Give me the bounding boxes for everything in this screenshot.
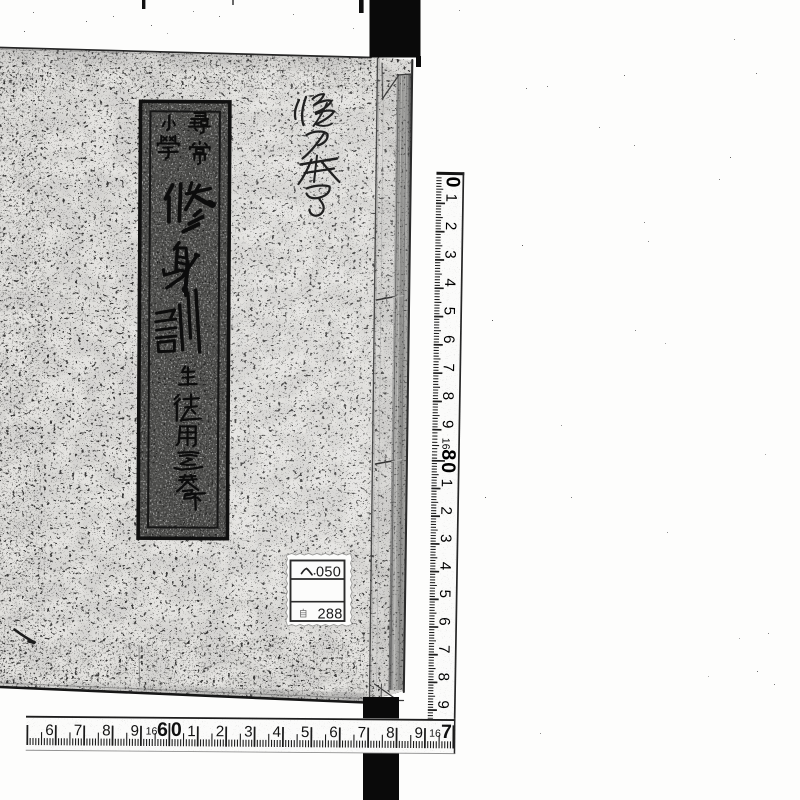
svg-text:6: 6 bbox=[440, 335, 457, 344]
svg-text:8: 8 bbox=[435, 672, 452, 681]
svg-text:4: 4 bbox=[272, 724, 281, 741]
svg-text:288: 288 bbox=[318, 607, 343, 623]
svg-text:9: 9 bbox=[439, 420, 456, 429]
svg-text:16: 16 bbox=[439, 438, 451, 450]
svg-text:2: 2 bbox=[437, 506, 454, 515]
svg-text:7: 7 bbox=[440, 363, 457, 372]
svg-text:6: 6 bbox=[436, 617, 453, 626]
svg-text:4: 4 bbox=[441, 278, 458, 287]
svg-text:16: 16 bbox=[146, 725, 158, 737]
svg-text:7: 7 bbox=[74, 722, 83, 739]
svg-text:050: 050 bbox=[316, 565, 341, 581]
svg-text:2: 2 bbox=[216, 723, 225, 740]
svg-text:8: 8 bbox=[102, 722, 111, 739]
svg-text:0: 0 bbox=[442, 176, 464, 187]
svg-text:0: 0 bbox=[171, 719, 182, 741]
svg-text:3: 3 bbox=[244, 724, 253, 741]
svg-text:16: 16 bbox=[429, 728, 441, 740]
svg-text:0: 0 bbox=[437, 462, 459, 473]
svg-text:6: 6 bbox=[157, 719, 168, 741]
svg-text:9: 9 bbox=[414, 725, 423, 742]
svg-text:9: 9 bbox=[434, 700, 451, 709]
svg-text:7: 7 bbox=[441, 721, 452, 743]
svg-text:7: 7 bbox=[358, 724, 367, 741]
svg-text:6: 6 bbox=[329, 724, 338, 741]
svg-text:1: 1 bbox=[438, 479, 455, 488]
svg-text:1: 1 bbox=[442, 193, 459, 202]
svg-text:8: 8 bbox=[386, 725, 395, 742]
svg-text:8: 8 bbox=[439, 392, 456, 401]
svg-text:4: 4 bbox=[436, 562, 453, 571]
svg-text:5: 5 bbox=[301, 724, 310, 741]
svg-text:8: 8 bbox=[437, 449, 459, 460]
svg-text:3: 3 bbox=[441, 250, 458, 259]
svg-text:9: 9 bbox=[130, 723, 139, 740]
svg-text:3: 3 bbox=[437, 534, 454, 543]
svg-text:5: 5 bbox=[441, 307, 458, 316]
svg-text:1: 1 bbox=[187, 723, 196, 740]
svg-text:5: 5 bbox=[436, 589, 453, 598]
svg-text:2: 2 bbox=[442, 222, 459, 231]
svg-text:6: 6 bbox=[45, 722, 54, 739]
svg-text:7: 7 bbox=[435, 645, 452, 654]
